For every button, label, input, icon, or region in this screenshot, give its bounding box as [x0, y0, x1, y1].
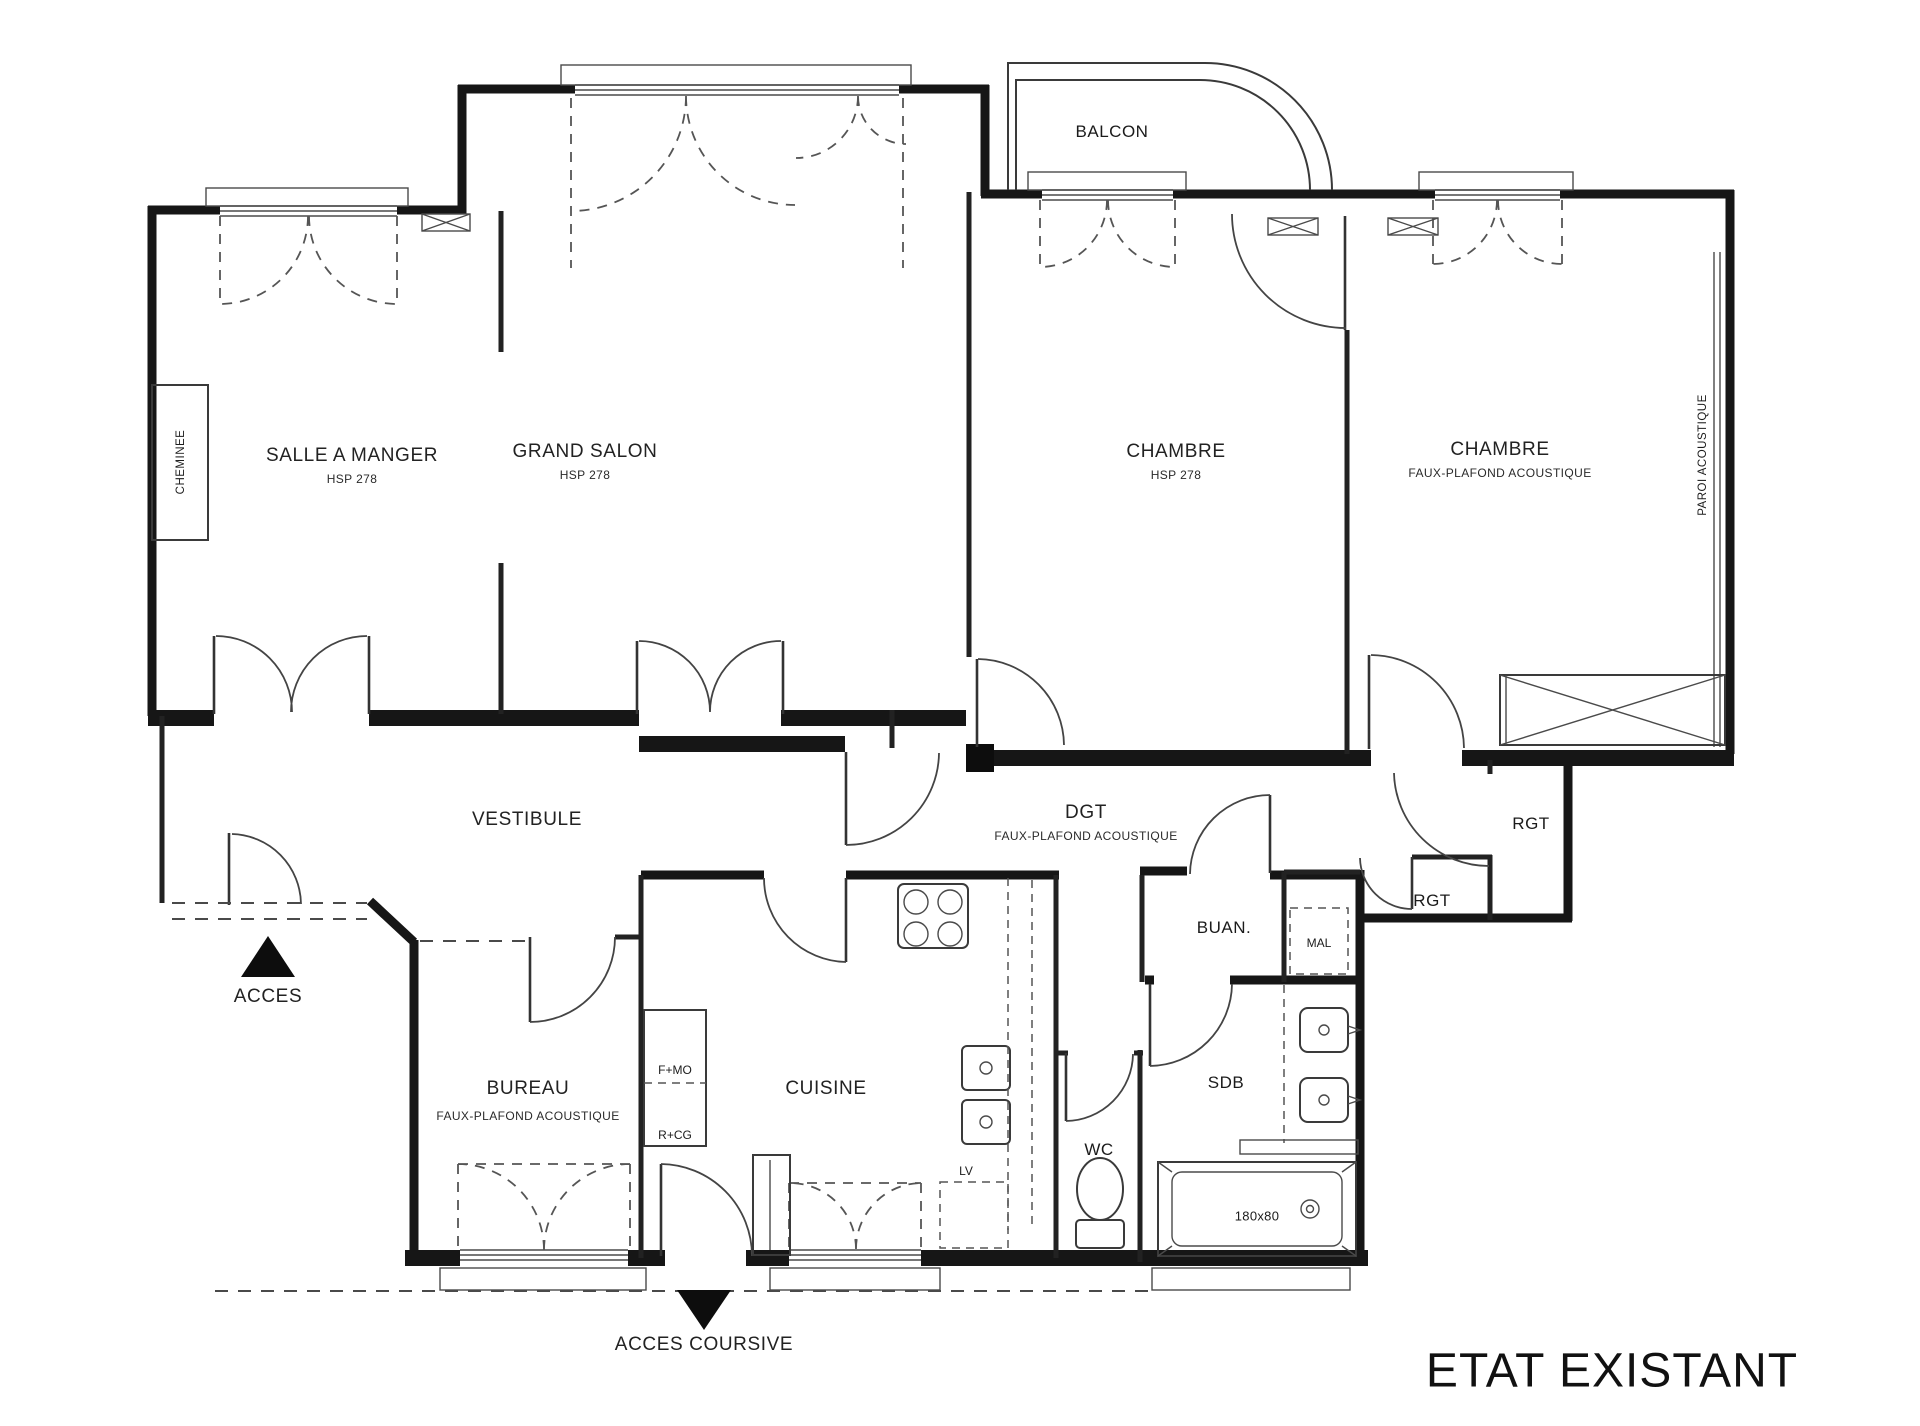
access-coursive-arrow-icon: [677, 1290, 731, 1330]
room-label-dgt: DGT: [1065, 802, 1107, 824]
floor-plan-drawing: [0, 0, 1920, 1426]
label-r-cg: R+CG: [658, 1128, 692, 1142]
floor-plan: SALLE A MANGER HSP 278 GRAND SALON HSP 2…: [0, 0, 1920, 1426]
room-label-sdb: SDB: [1208, 1073, 1244, 1093]
room-label-vestibule: VESTIBULE: [472, 809, 582, 831]
room-sub-bureau: FAUX-PLAFOND ACOUSTIQUE: [436, 1109, 619, 1123]
kitchen-cabinets: [644, 878, 1032, 1255]
room-sub-dgt: FAUX-PLAFOND ACOUSTIQUE: [994, 829, 1177, 843]
room-label-rgt-upper: RGT: [1512, 814, 1549, 834]
exterior-walls: [148, 85, 1734, 1262]
access-arrow-icon: [241, 936, 295, 977]
label-dishwasher: LV: [959, 1164, 973, 1178]
kitchen-sink-icon: [962, 1046, 1010, 1144]
room-label-chambre-1: CHAMBRE: [1126, 441, 1225, 463]
room-sub-chambre-1: HSP 278: [1151, 468, 1202, 482]
radiators: [422, 214, 1438, 235]
room-label-chambre-2: CHAMBRE: [1450, 439, 1549, 461]
wardrobe: [1500, 675, 1725, 745]
label-acces: ACCES: [234, 986, 302, 1008]
label-fridge-microwave: F+MO: [658, 1063, 692, 1077]
structural-column: [966, 744, 994, 772]
bathroom-sinks-icon: [1240, 985, 1360, 1154]
label-tub-size: 180x80: [1235, 1209, 1279, 1224]
room-label-wc: WC: [1084, 1140, 1113, 1160]
stove-icon: [898, 884, 968, 948]
acoustic-lining: [1714, 252, 1720, 747]
room-label-salle-a-manger: SALLE A MANGER: [266, 445, 438, 467]
room-label-rgt-lower: RGT: [1413, 891, 1450, 911]
room-sub-chambre-2: FAUX-PLAFOND ACOUSTIQUE: [1408, 466, 1591, 480]
plan-title: ETAT EXISTANT: [1426, 1344, 1798, 1399]
room-label-grand-salon: GRAND SALON: [513, 441, 658, 463]
room-label-cuisine: CUISINE: [785, 1078, 866, 1100]
room-label-bureau: BUREAU: [487, 1078, 570, 1100]
label-paroi-acoustique: PAROI ACOUSTIQUE: [1697, 394, 1709, 516]
room-sub-salle-a-manger: HSP 278: [327, 472, 378, 486]
room-sub-grand-salon: HSP 278: [560, 468, 611, 482]
balcony-outline: [1008, 63, 1332, 190]
toilet-icon: [1076, 1158, 1124, 1248]
label-cheminee: CHEMINEE: [175, 430, 187, 495]
room-label-balcon: BALCON: [1076, 122, 1149, 142]
interior-partitions: [162, 192, 1492, 1262]
label-acces-coursive: ACCES COURSIVE: [615, 1334, 793, 1356]
room-label-buanderie: BUAN.: [1197, 918, 1251, 938]
label-washing-machine: MAL: [1307, 936, 1332, 950]
